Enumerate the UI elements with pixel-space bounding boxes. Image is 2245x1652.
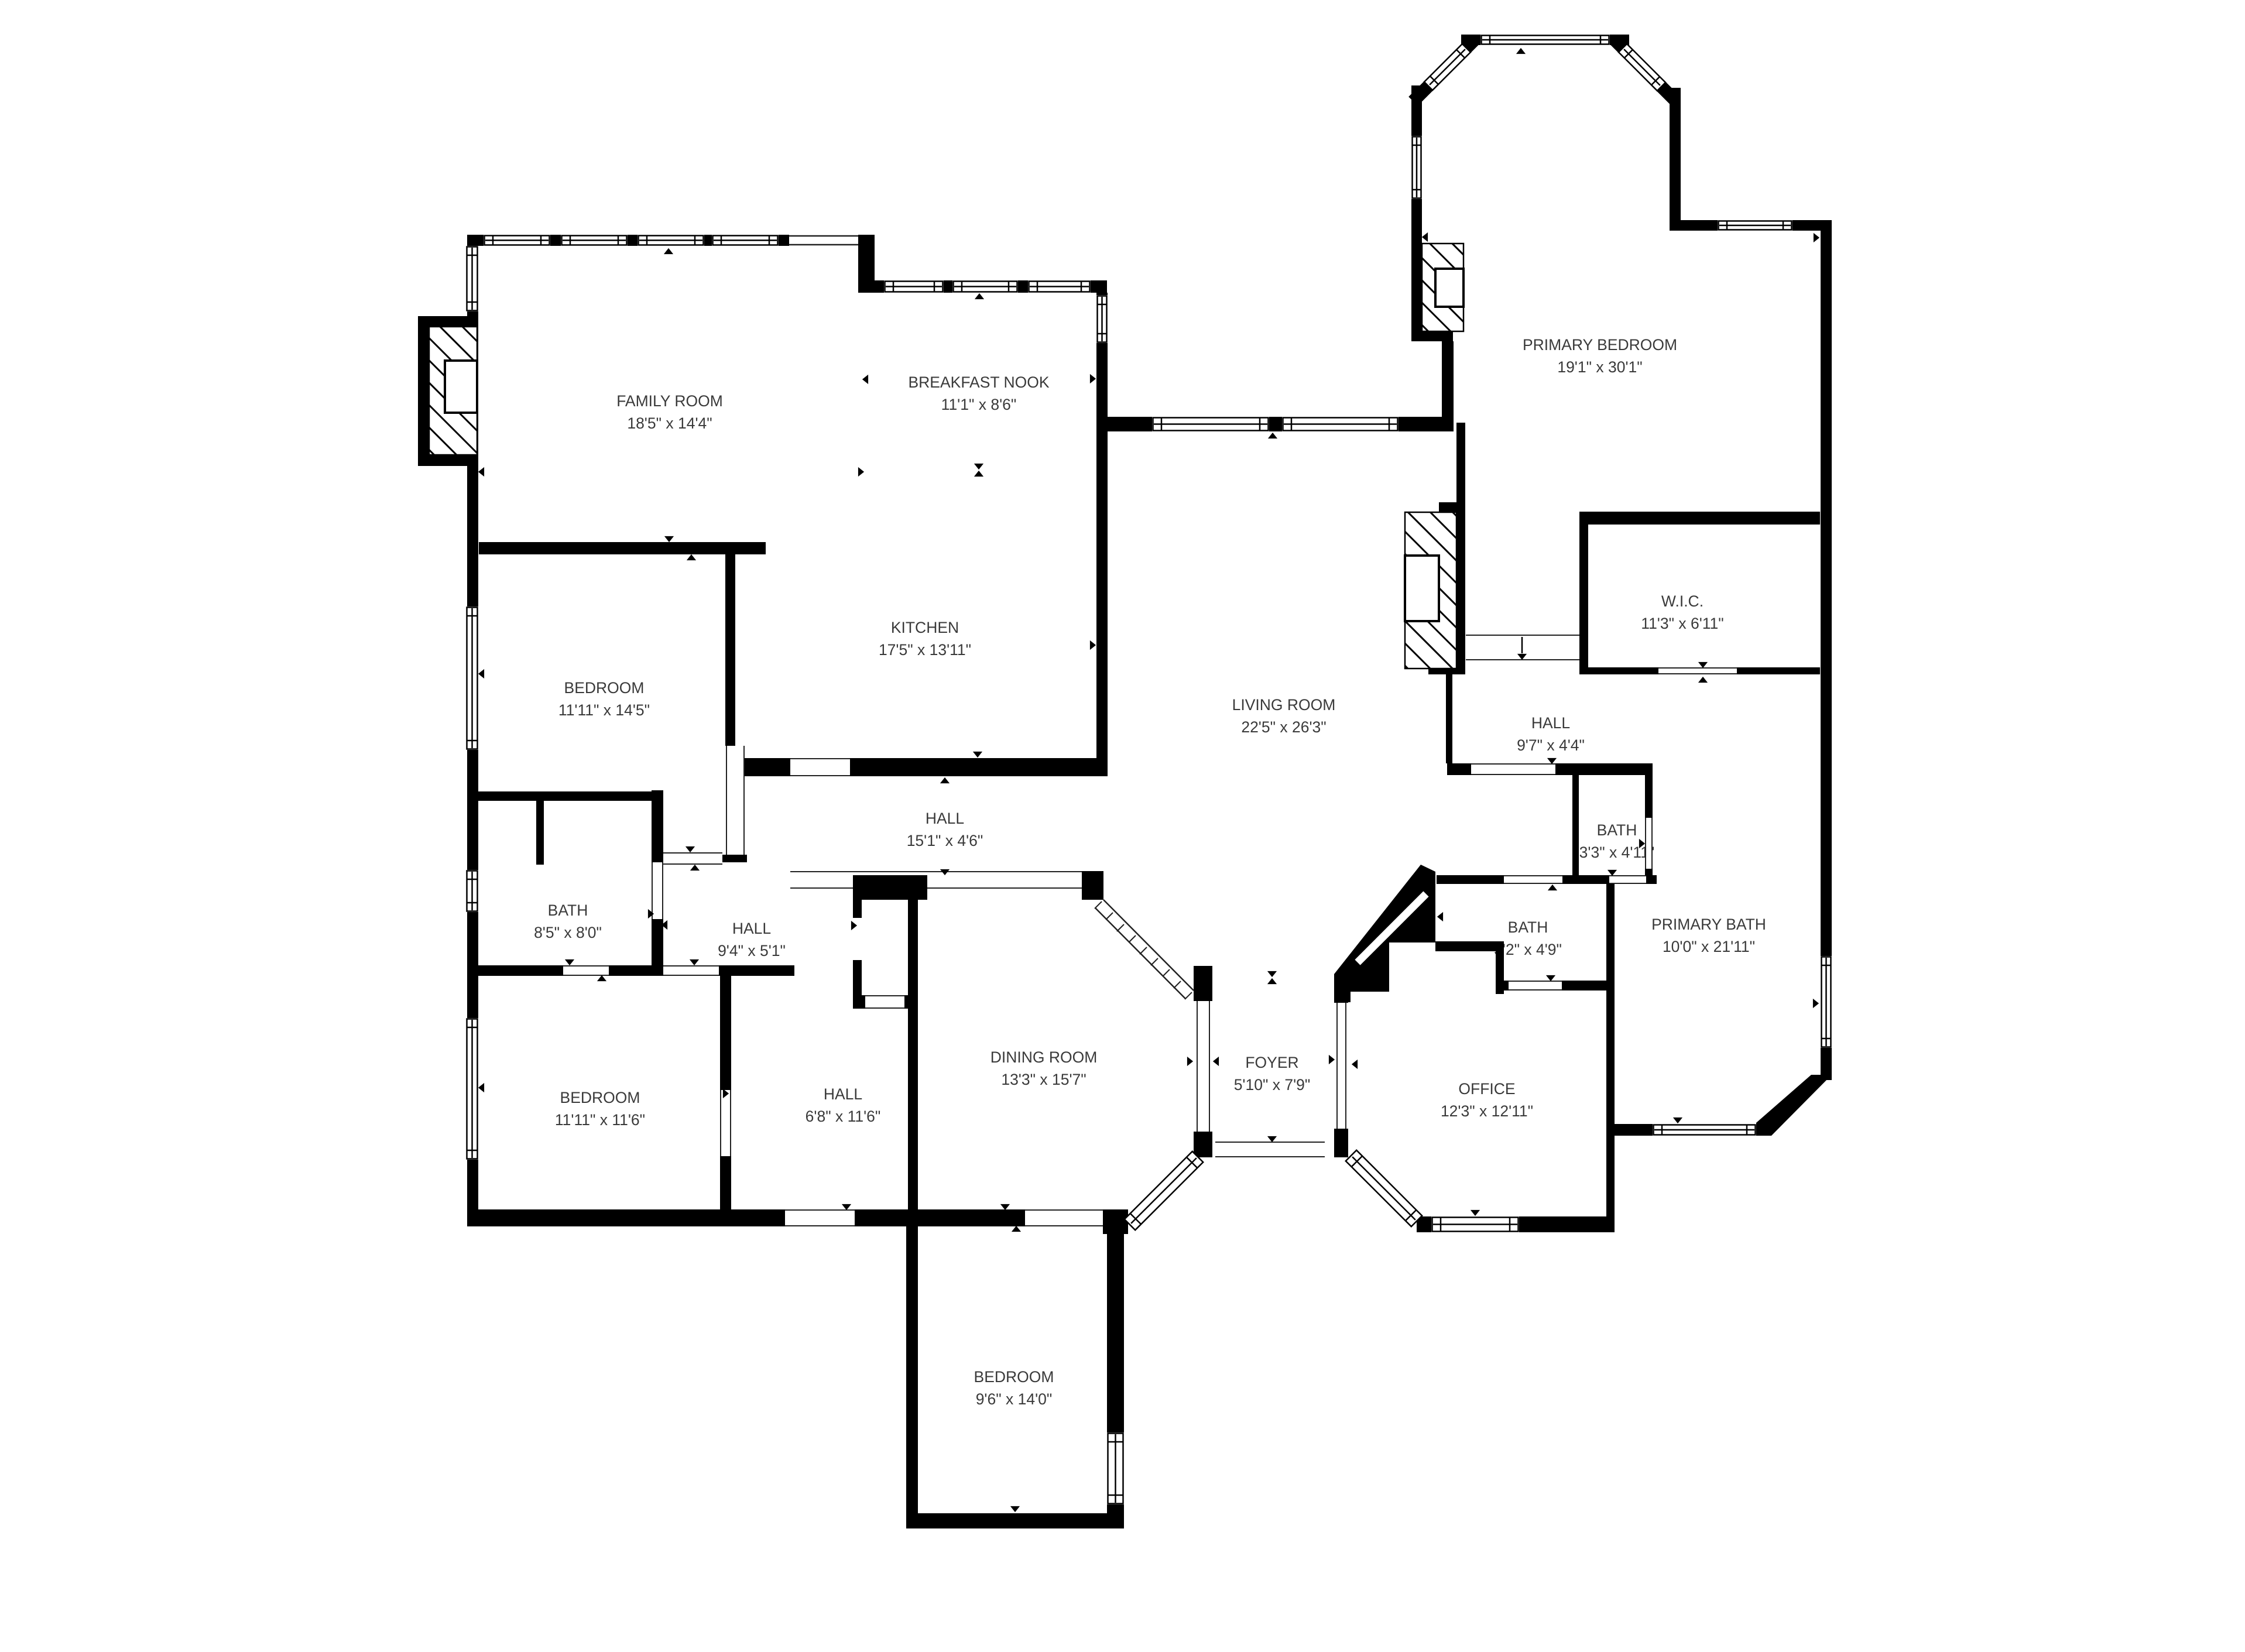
svg-text:3'3" x 4'11": 3'3" x 4'11": [1579, 844, 1655, 861]
svg-text:BEDROOM: BEDROOM: [974, 1368, 1054, 1386]
svg-text:FOYER: FOYER: [1245, 1054, 1298, 1071]
svg-text:BATH: BATH: [548, 902, 588, 919]
svg-text:11'3" x 6'11": 11'3" x 6'11": [1641, 615, 1723, 632]
svg-text:FAMILY ROOM: FAMILY ROOM: [616, 392, 723, 410]
svg-text:3'2" x 4'9": 3'2" x 4'9": [1494, 941, 1562, 958]
svg-text:HALL: HALL: [1531, 714, 1570, 732]
svg-text:HALL: HALL: [732, 920, 771, 937]
svg-text:11'11" x 11'6": 11'11" x 11'6": [555, 1111, 645, 1129]
svg-text:BEDROOM: BEDROOM: [560, 1089, 640, 1106]
svg-text:15'1" x 4'6": 15'1" x 4'6": [907, 832, 983, 849]
svg-text:12'3" x 12'11": 12'3" x 12'11": [1441, 1102, 1533, 1120]
svg-text:8'5" x 8'0": 8'5" x 8'0": [534, 924, 602, 941]
svg-text:BATH: BATH: [1597, 821, 1637, 839]
svg-text:11'11" x 14'5": 11'11" x 14'5": [558, 701, 650, 719]
svg-text:PRIMARY BEDROOM: PRIMARY BEDROOM: [1523, 336, 1677, 354]
svg-text:6'8" x 11'6": 6'8" x 11'6": [806, 1108, 881, 1125]
svg-text:W.I.C.: W.I.C.: [1661, 592, 1704, 610]
svg-text:PRIMARY BATH: PRIMARY BATH: [1651, 916, 1766, 933]
svg-text:9'4" x 5'1": 9'4" x 5'1": [718, 942, 786, 959]
svg-text:9'6" x 14'0": 9'6" x 14'0": [976, 1390, 1053, 1408]
svg-text:LIVING ROOM: LIVING ROOM: [1232, 696, 1336, 714]
svg-text:10'0" x 21'11": 10'0" x 21'11": [1663, 938, 1755, 955]
svg-text:DINING ROOM: DINING ROOM: [990, 1048, 1098, 1066]
svg-text:BEDROOM: BEDROOM: [564, 679, 645, 697]
svg-text:13'3" x 15'7": 13'3" x 15'7": [1001, 1071, 1086, 1088]
svg-text:22'5" x 26'3": 22'5" x 26'3": [1241, 718, 1326, 736]
svg-text:9'7" x 4'4": 9'7" x 4'4": [1517, 736, 1585, 754]
svg-text:KITCHEN: KITCHEN: [891, 619, 959, 636]
svg-text:19'1" x 30'1": 19'1" x 30'1": [1557, 358, 1642, 376]
svg-text:BREAKFAST NOOK: BREAKFAST NOOK: [908, 373, 1049, 391]
svg-text:HALL: HALL: [926, 810, 964, 827]
svg-text:5'10" x 7'9": 5'10" x 7'9": [1234, 1076, 1311, 1094]
svg-text:11'1" x 8'6": 11'1" x 8'6": [941, 396, 1017, 413]
svg-text:18'5" x 14'4": 18'5" x 14'4": [627, 414, 712, 432]
svg-text:BATH: BATH: [1508, 918, 1548, 936]
svg-text:HALL: HALL: [824, 1085, 862, 1103]
svg-text:17'5" x 13'11": 17'5" x 13'11": [879, 641, 971, 659]
svg-text:OFFICE: OFFICE: [1458, 1080, 1515, 1098]
